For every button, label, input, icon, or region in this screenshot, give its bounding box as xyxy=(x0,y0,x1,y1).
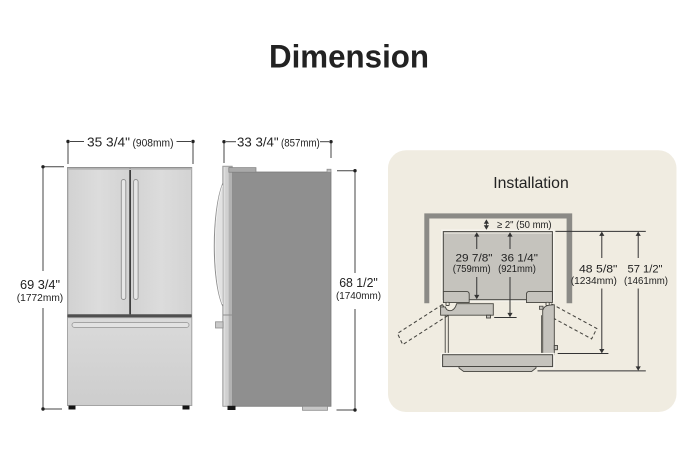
svg-text:48 5/8": 48 5/8" xyxy=(579,264,617,276)
svg-text:(1772mm): (1772mm) xyxy=(17,292,63,304)
svg-text:(1740mm): (1740mm) xyxy=(336,290,381,302)
svg-text:Installation: Installation xyxy=(493,175,569,192)
svg-text:68 1/2": 68 1/2" xyxy=(339,275,378,290)
svg-text:33 3/4": 33 3/4" xyxy=(237,135,279,150)
svg-text:69 3/4": 69 3/4" xyxy=(20,277,60,292)
svg-text:(857mm): (857mm) xyxy=(281,138,320,150)
svg-text:35 3/4": 35 3/4" xyxy=(87,135,130,150)
svg-text:57 1/2": 57 1/2" xyxy=(628,264,663,276)
svg-text:(1234mm): (1234mm) xyxy=(571,275,617,287)
svg-text:(908mm): (908mm) xyxy=(133,138,174,150)
svg-text:(1461mm): (1461mm) xyxy=(624,275,668,287)
svg-text:Dimension: Dimension xyxy=(269,39,429,75)
svg-text:(921mm): (921mm) xyxy=(498,263,536,275)
svg-text:(759mm): (759mm) xyxy=(453,263,491,275)
svg-text:≥ 2" (50 mm): ≥ 2" (50 mm) xyxy=(497,219,552,231)
